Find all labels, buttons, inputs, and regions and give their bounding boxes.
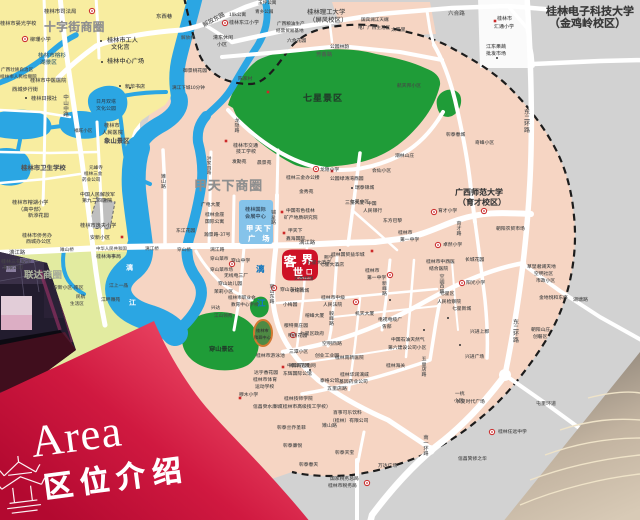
svg-text:穿山中学: 穿山中学	[231, 257, 250, 264]
svg-text:西城步行街: 西城步行街	[12, 86, 38, 93]
svg-text:穿山东路: 穿山东路	[269, 283, 276, 304]
svg-text:彰泰天宝: 彰泰天宝	[335, 449, 354, 456]
svg-text:卓然小学: 卓然小学	[443, 241, 462, 248]
svg-text:桂林市卫生学校: 桂林市卫生学校	[20, 163, 66, 172]
svg-text:穆木小学: 穆木小学	[239, 391, 258, 398]
svg-text:长城花园: 长城花园	[465, 256, 484, 263]
svg-text:漓江下城10分钟: 漓江下城10分钟	[172, 85, 205, 91]
svg-text:桂林市中级: 桂林市中级	[321, 294, 345, 301]
svg-text:第九二四医院: 第九二四医院	[82, 197, 112, 204]
svg-text:电厂广西生活区: 电厂广西生活区	[358, 25, 391, 31]
svg-text:桂林市: 桂林市	[256, 328, 269, 334]
svg-text:桂林东江小学: 桂林东江小学	[229, 19, 259, 26]
svg-text:穿山幼儿园: 穿山幼儿园	[218, 280, 242, 287]
svg-text:万达广场: 万达广场	[378, 462, 397, 469]
svg-text:朝阳山庄: 朝阳山庄	[531, 326, 550, 333]
svg-text:桂林任远中学: 桂林任远中学	[498, 428, 527, 435]
svg-text:七星大酒店: 七星大酒店	[307, 259, 331, 266]
svg-text:樱特莱庄园: 樱特莱庄园	[284, 322, 308, 329]
svg-text:天香佳园: 天香佳园	[294, 275, 313, 282]
svg-text:榕峰大厦: 榕峰大厦	[305, 312, 324, 319]
svg-text:联达商圈: 联达商圈	[24, 267, 62, 281]
svg-text:清东休闲: 清东休闲	[213, 34, 233, 41]
svg-text:兴进广场: 兴进广场	[465, 353, 484, 360]
svg-text:育才路: 育才路	[456, 220, 463, 236]
svg-text:（桂林）有限公司: （桂林）有限公司	[330, 417, 369, 424]
svg-text:矿产地质研究院: 矿产地质研究院	[284, 214, 318, 221]
svg-text:龙隐小学: 龙隐小学	[320, 166, 339, 173]
svg-text:元峰寺: 元峰寺	[89, 165, 103, 171]
svg-text:新华书店: 新华书店	[125, 83, 145, 90]
svg-text:基因药业公司: 基因药业公司	[339, 378, 368, 385]
svg-text:江: 江	[129, 298, 136, 308]
svg-text:象山景区: 象山景区	[104, 136, 130, 145]
svg-text:东江花园: 东江花园	[176, 227, 195, 234]
svg-text:桂林海事局: 桂林海事局	[96, 253, 121, 260]
svg-text:第一中学: 第一中学	[400, 236, 419, 243]
svg-text:广场: 广场	[248, 234, 277, 244]
svg-text:东二环路: 东二环路	[512, 318, 521, 343]
svg-text:六合路: 六合路	[448, 9, 465, 17]
svg-text:江东果蔬: 江东果蔬	[486, 43, 506, 50]
svg-text:国际公寓: 国际公寓	[205, 218, 224, 225]
svg-text:中国南方电网: 中国南方电网	[287, 362, 316, 369]
svg-text:告部: 告部	[382, 323, 392, 330]
svg-text:屯里环道: 屯里环道	[536, 400, 556, 407]
svg-text:漓: 漓	[126, 263, 133, 273]
svg-text:18k公寓: 18k公寓	[229, 12, 246, 18]
svg-text:发勳苑: 发勳苑	[232, 158, 247, 165]
svg-text:十字街商圈: 十字街商圈	[44, 18, 105, 35]
svg-text:广西粮油生产: 广西粮油生产	[277, 21, 305, 27]
svg-text:阳光小学: 阳光小学	[466, 279, 485, 286]
svg-text:洪家园路: 洪家园路	[206, 156, 212, 175]
svg-text:空明社区: 空明社区	[534, 270, 553, 277]
svg-text:彰泰春城: 彰泰春城	[446, 131, 465, 138]
svg-text:雉山桥: 雉山桥	[60, 247, 74, 253]
svg-text:民航: 民航	[76, 294, 86, 300]
svg-text:雉山路: 雉山路	[160, 173, 167, 189]
svg-text:桂林市体育: 桂林市体育	[253, 376, 277, 383]
svg-text:湖景区: 湖景区	[40, 58, 57, 66]
svg-text:金秀苑: 金秀苑	[299, 188, 314, 195]
svg-text:桂林市职业会: 桂林市职业会	[228, 295, 256, 301]
svg-text:（金鸡岭校区）: （金鸡岭校区）	[549, 15, 626, 31]
svg-text:生活区: 生活区	[70, 301, 84, 307]
svg-text:奇峰小区: 奇峰小区	[475, 139, 494, 146]
svg-text:运动学校: 运动学校	[255, 383, 274, 390]
svg-text:太平里: 太平里	[391, 26, 406, 33]
svg-text:会展中心: 会展中心	[245, 213, 267, 220]
svg-text:桂林市游泳池: 桂林市游泳池	[256, 352, 285, 359]
svg-text:公园林韵: 公园林韵	[330, 43, 349, 50]
svg-text:电视电缆广: 电视电缆广	[378, 316, 402, 323]
svg-text:汇通小学: 汇通小学	[494, 23, 514, 30]
svg-text:新峰路: 新峰路	[381, 280, 388, 296]
svg-text:解放桥: 解放桥	[181, 35, 195, 41]
svg-text:中国石油天然气: 中国石油天然气	[391, 336, 425, 343]
svg-text:瀚景路-37号: 瀚景路-37号	[204, 231, 231, 238]
svg-text:新添花园: 新添花园	[28, 212, 49, 219]
svg-text:人民银行: 人民银行	[363, 207, 382, 214]
svg-text:日月双塔: 日月双塔	[96, 98, 116, 105]
svg-text:漓江路: 漓江路	[9, 248, 26, 256]
svg-text:市政小区: 市政小区	[536, 277, 555, 284]
svg-text:无线电三厂: 无线电三厂	[224, 272, 248, 279]
svg-text:安新小区-南区: 安新小区-南区	[53, 284, 84, 291]
svg-text:江畔雅苑: 江畔雅苑	[101, 296, 120, 303]
svg-text:彰泰廉悦: 彰泰廉悦	[283, 442, 302, 449]
svg-text:金地悦和东序: 金地悦和东序	[539, 294, 568, 301]
svg-text:创业工业园: 创业工业园	[315, 352, 339, 359]
svg-text:国家税务总局: 国家税务总局	[330, 475, 359, 482]
svg-text:三里大厦: 三里大厦	[345, 199, 364, 206]
svg-text:穿山桥: 穿山桥	[177, 247, 191, 253]
svg-text:七星新城: 七星新城	[452, 305, 471, 312]
svg-text:桂林市: 桂林市	[497, 15, 512, 22]
svg-text:漓: 漓	[256, 263, 265, 275]
svg-text:潮林山庄: 潮林山庄	[395, 152, 414, 159]
svg-text:第六建设公司小区: 第六建设公司小区	[388, 344, 427, 351]
svg-text:桂林市中西医: 桂林市中西医	[426, 258, 455, 265]
svg-text:甲天下: 甲天下	[288, 227, 303, 234]
svg-text:五里店路: 五里店路	[327, 385, 347, 392]
svg-text:晨景苑: 晨景苑	[257, 159, 272, 166]
svg-text:桂林市榕湖小学: 桂林市榕湖小学	[12, 199, 48, 206]
svg-text:桂林国贸益华城: 桂林国贸益华城	[331, 251, 365, 258]
svg-text:福旺小区: 福旺小区	[74, 128, 93, 134]
svg-text:七星区政府: 七星区政府	[300, 330, 324, 337]
svg-text:朝阳农贸市场: 朝阳农贸市场	[496, 225, 525, 232]
svg-text:桂林海关: 桂林海关	[386, 362, 405, 369]
svg-text:龙隐路: 龙隐路	[234, 117, 241, 133]
svg-text:五里店路: 五里店路	[421, 356, 428, 377]
svg-text:甲天下商圈: 甲天下商圈	[194, 175, 263, 194]
svg-text:瑞泰锦城: 瑞泰锦城	[355, 184, 374, 191]
svg-text:七星区: 七星区	[440, 290, 455, 297]
svg-text:教育中心学校: 教育中心学校	[231, 302, 259, 308]
svg-text:御景桃花园: 御景桃花园	[183, 67, 207, 74]
svg-text:彰泰兰乔圣菲: 彰泰兰乔圣菲	[277, 424, 306, 431]
svg-text:毅峰路: 毅峰路	[328, 310, 335, 326]
svg-text:（育才校区）: （育才校区）	[458, 197, 506, 208]
svg-text:东西巷: 东西巷	[156, 12, 173, 20]
svg-text:文化宫: 文化宫	[111, 42, 130, 51]
svg-text:桂林南新医院: 桂林南新医院	[335, 354, 364, 361]
svg-text:长夏时代广场: 长夏时代广场	[456, 398, 485, 405]
svg-text:药业公司: 药业公司	[82, 177, 101, 183]
svg-text:百事可乐饮料: 百事可乐饮料	[333, 409, 362, 416]
svg-text:三潭小区: 三潭小区	[289, 348, 308, 355]
svg-text:桂林市晏光学校: 桂林市晏光学校	[0, 20, 37, 27]
svg-text:桂林华润漓威: 桂林华润漓威	[340, 371, 369, 378]
svg-text:东二环路: 东二环路	[523, 108, 532, 133]
svg-text:兴达: 兴达	[211, 305, 221, 311]
svg-text:六合花园: 六合花园	[287, 37, 306, 44]
svg-text:人民医院: 人民医院	[102, 129, 124, 136]
svg-text:航天邦小区: 航天邦小区	[397, 82, 421, 89]
svg-text:达宇香花园: 达宇香花园	[254, 369, 278, 376]
svg-text:小区: 小区	[217, 41, 227, 48]
svg-text:文化公园: 文化公园	[96, 105, 116, 112]
svg-text:信昌箕修之华: 信昌箕修之华	[458, 455, 487, 462]
svg-text:经营贸易基地: 经营贸易基地	[276, 28, 304, 34]
svg-text:安新小区: 安新小区	[90, 234, 110, 241]
svg-text:桂林市税务局: 桂林市税务局	[328, 482, 357, 489]
svg-text:芳香路: 芳香路	[316, 50, 333, 58]
svg-text:穿山菜市: 穿山菜市	[210, 256, 229, 262]
svg-text:桂林金座: 桂林金座	[205, 211, 224, 218]
svg-text:桂林市中医医院: 桂林市中医医院	[30, 77, 67, 84]
svg-text:柳珊小学: 柳珊小学	[30, 36, 51, 43]
svg-text:桂林技师学院: 桂林技师学院	[284, 395, 313, 402]
svg-text:中山中路: 中山中路	[62, 94, 70, 117]
svg-text:技工学校: 技工学校	[236, 148, 256, 155]
svg-text:东方巴黎: 东方巴黎	[383, 217, 402, 224]
svg-text:桂林市: 桂林市	[365, 267, 380, 274]
svg-text:会仙小区: 会仙小区	[372, 167, 391, 174]
svg-text:东辉国际公馆: 东辉国际公馆	[283, 370, 312, 377]
svg-text:批发市场: 批发市场	[486, 50, 506, 57]
svg-text:鑫海国际: 鑫海国际	[286, 235, 305, 242]
svg-text:青乡公园: 青乡公园	[255, 9, 274, 15]
svg-text:桂林日报社: 桂林日报社	[31, 95, 57, 102]
svg-text:育才小学: 育才小学	[438, 207, 457, 214]
svg-text:空明西路: 空明西路	[322, 340, 342, 347]
svg-text:西城办公区: 西城办公区	[26, 238, 51, 245]
svg-text:彰泰春天: 彰泰春天	[299, 461, 318, 468]
svg-text:七星景区: 七星景区	[303, 91, 343, 104]
svg-text:有限公司: 有限公司	[3, 264, 23, 271]
svg-text:漓江桥: 漓江桥	[145, 246, 159, 252]
svg-text:机天大厦: 机天大厦	[355, 310, 374, 317]
svg-text:殡葬中心: 殡葬中心	[254, 335, 272, 341]
svg-text:人民法院: 人民法院	[323, 301, 342, 308]
svg-text:桂林三金办公楼: 桂林三金办公楼	[286, 174, 320, 181]
svg-text:（屏风校区）: （屏风校区）	[309, 15, 347, 24]
svg-text:小梅园: 小梅园	[283, 301, 298, 308]
svg-text:桂林市: 桂林市	[398, 229, 413, 236]
svg-text:（桂林市高级技工学校）: （桂林市高级技工学校）	[278, 403, 331, 410]
svg-text:公园绿涛湾西园: 公园绿涛湾西园	[330, 175, 364, 182]
svg-text:铺星路: 铺星路	[270, 209, 277, 225]
svg-text:草埜君澜天地: 草埜君澜天地	[527, 263, 556, 270]
svg-text:穿山景区: 穿山景区	[209, 344, 235, 353]
svg-text:江上一品: 江上一品	[109, 282, 128, 289]
svg-text:湖塘路: 湖塘路	[573, 296, 588, 303]
svg-text:甲天下: 甲天下	[246, 224, 273, 234]
svg-text:兴进上郡: 兴进上郡	[470, 328, 489, 335]
svg-text:桂林市司法局: 桂林市司法局	[44, 7, 76, 15]
svg-text:陈家村: 陈家村	[238, 75, 253, 82]
svg-text:人民检察院: 人民检察院	[437, 298, 461, 305]
svg-text:国宾澜江天樾: 国宾澜江天樾	[361, 17, 389, 23]
svg-text:结合医院: 结合医院	[429, 265, 448, 272]
svg-text:中国有色桂林: 中国有色桂林	[286, 207, 315, 214]
svg-text:桂林中心广场: 桂林中心广场	[107, 56, 144, 65]
svg-text:桂林三金: 桂林三金	[84, 171, 103, 177]
svg-text:中国: 中国	[367, 200, 377, 207]
svg-text:广电大厦: 广电大厦	[201, 201, 220, 208]
svg-text:中华人民共和国: 中华人民共和国	[96, 246, 127, 252]
svg-text:桂林国际: 桂林国际	[245, 206, 266, 213]
svg-text:泰格公馆: 泰格公馆	[320, 377, 339, 384]
svg-text:一杭: 一杭	[455, 390, 465, 397]
svg-text:玉坪公寓: 玉坪公寓	[258, 0, 277, 6]
svg-text:茉莉小区: 茉莉小区	[214, 288, 233, 295]
svg-text:桂林市: 桂林市	[104, 122, 120, 129]
svg-text:桂林市逸夫小学: 桂林市逸夫小学	[80, 222, 116, 229]
svg-text:南一环路: 南一环路	[422, 434, 429, 456]
svg-text:漓江路: 漓江路	[210, 246, 225, 253]
svg-text:江山领秀: 江山领秀	[214, 313, 233, 319]
svg-text:创磐区: 创磐区	[533, 333, 548, 340]
svg-text:穿山东社区: 穿山东社区	[280, 286, 304, 293]
svg-text:广西壮族自治区: 广西壮族自治区	[1, 67, 34, 73]
